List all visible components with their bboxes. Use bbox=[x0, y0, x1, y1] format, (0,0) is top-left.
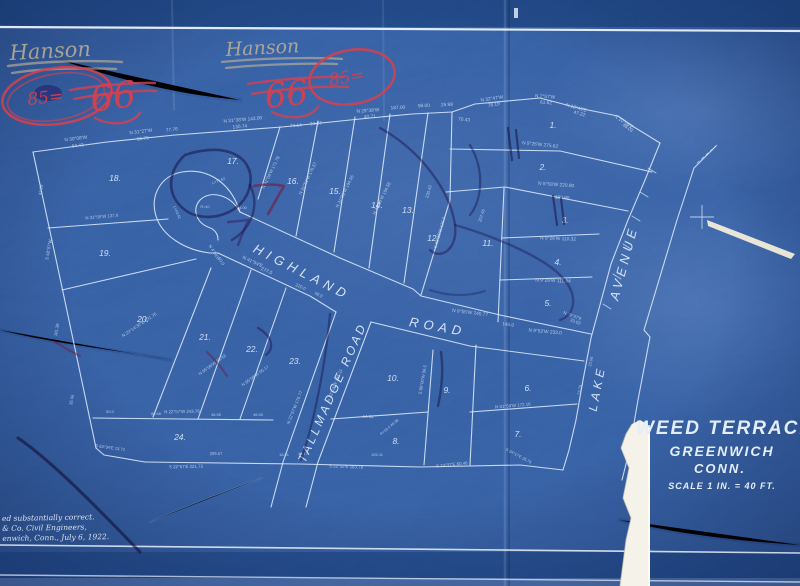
lot-number-label: 17. bbox=[227, 156, 239, 166]
blueprint-map: HIGHLANDROADTALLMADGE ROADAVENUELAKE 1.2… bbox=[0, 0, 800, 586]
bearing-label: 64.64 bbox=[363, 414, 375, 420]
bearing-label: 80.66 bbox=[151, 411, 162, 416]
bearing-label: 105.11 bbox=[371, 452, 384, 457]
lot-number-label: 15. bbox=[329, 186, 341, 196]
lot-number-label: 19. bbox=[99, 248, 111, 258]
bearing-label: 50.0 bbox=[106, 409, 115, 414]
bearing-label: 61.62 bbox=[540, 100, 553, 107]
lot-number-label: 24. bbox=[173, 432, 186, 442]
map-scale-note: SCALE 1 IN. = 40 FT. bbox=[668, 481, 776, 491]
bearing-label: N 22°57'W 243.76 bbox=[164, 409, 200, 415]
lot-number-label: 10. bbox=[387, 373, 399, 383]
bottom-margin-strip bbox=[0, 552, 800, 578]
bearing-label: 187.00 bbox=[390, 105, 405, 112]
blueprint-scan: HIGHLANDROADTALLMADGE ROADAVENUELAKE 1.2… bbox=[0, 0, 800, 586]
bearing-label: 29.98 bbox=[441, 102, 454, 109]
certification-line: & Co. Civil Engineers, bbox=[2, 522, 87, 532]
bearing-label: 40.71 bbox=[364, 114, 377, 121]
bearing-label: S 22°57'E 221.73 bbox=[169, 464, 204, 470]
lot-number-label: 6. bbox=[524, 383, 531, 393]
bearing-label: 74.14 bbox=[290, 123, 303, 130]
bearing-label: 46.55 bbox=[211, 412, 222, 417]
lot-number-label: 4. bbox=[554, 257, 561, 267]
lot-number-label: 9. bbox=[443, 385, 450, 395]
lot-number-label: 22. bbox=[245, 344, 258, 354]
lot-number-label: 16. bbox=[287, 176, 299, 186]
bearing-label: 4.00 bbox=[239, 206, 246, 210]
bearing-label: 209.57 bbox=[210, 451, 224, 456]
lot-number-label: 13. bbox=[402, 205, 414, 215]
lot-number-label: 1. bbox=[549, 120, 556, 130]
bearing-label: 46.55 bbox=[253, 412, 264, 417]
circled-grade: 85= bbox=[26, 86, 64, 110]
bearing-label: 70.43 bbox=[458, 116, 471, 123]
lot-number-label: 7. bbox=[514, 429, 521, 439]
bearing-label: 98.00 bbox=[418, 103, 431, 110]
bearing-label: 34.07 bbox=[310, 121, 323, 128]
lot-number-label: 23. bbox=[288, 356, 301, 366]
red-grade: 66 bbox=[88, 74, 139, 121]
map-title: WEED TERRACE bbox=[636, 418, 800, 439]
lot-number-label: 5. bbox=[544, 298, 551, 308]
lot-number-label: 18. bbox=[109, 173, 121, 183]
top-margin-strip bbox=[0, 0, 800, 27]
certification-line: enwich, Conn., July 6, 1922. bbox=[2, 532, 109, 543]
bearing-label: N 9°26'W 110.32 bbox=[540, 235, 576, 242]
certification-line: ed substantially correct. bbox=[2, 512, 95, 523]
lot-number-label: 11. bbox=[482, 238, 493, 248]
map-subtitle-state: CONN. bbox=[694, 461, 746, 476]
map-subtitle-town: GREENWICH bbox=[669, 443, 774, 459]
lot-number-label: 21. bbox=[198, 332, 211, 342]
bearing-label: 18.91 bbox=[279, 452, 290, 457]
paper-nick bbox=[514, 8, 518, 18]
bearing-label: R=40 bbox=[200, 205, 209, 209]
torn-paper-patch bbox=[620, 420, 650, 586]
lot-number-label: 2. bbox=[538, 162, 546, 172]
lot-number-label: 8. bbox=[392, 436, 399, 446]
